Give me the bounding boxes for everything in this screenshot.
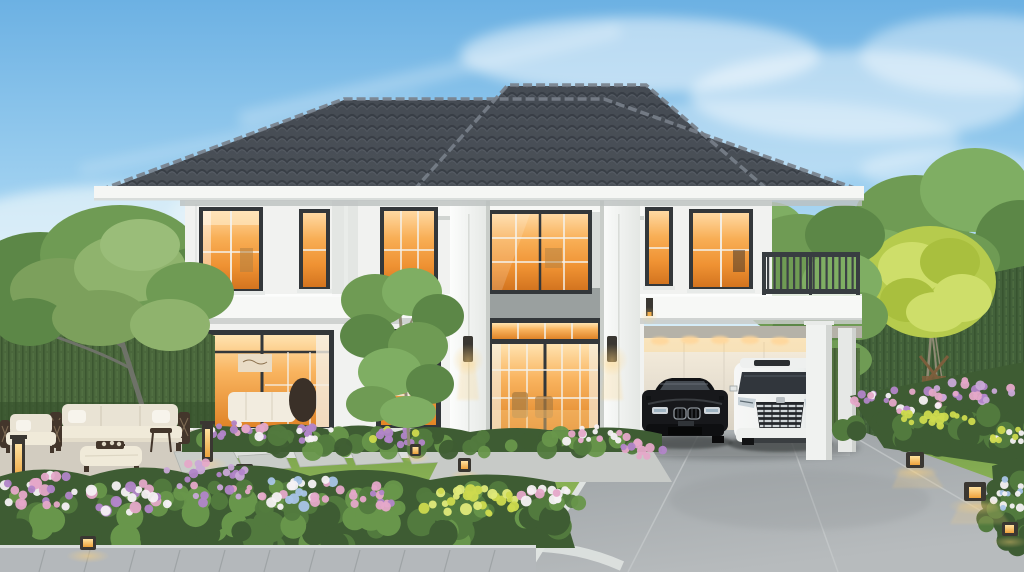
plant-dot (645, 443, 655, 453)
plant-dot (230, 426, 238, 434)
plant-dot (443, 508, 451, 516)
entry-door (486, 318, 604, 438)
plant-dot (195, 460, 203, 468)
plant-dot (225, 485, 235, 495)
plant-dot (960, 380, 969, 389)
plant-dot (521, 496, 532, 507)
plant-dot (447, 497, 456, 506)
plant-dot (397, 441, 404, 448)
plant-dot (462, 440, 477, 455)
plant-dot (886, 393, 892, 399)
plant-dot (111, 496, 122, 507)
plant-dot (285, 496, 293, 504)
plant-dot (163, 500, 171, 508)
plant-dot (858, 390, 866, 398)
plant-dot (321, 476, 329, 484)
plant-dot (658, 446, 667, 455)
plant-dot (594, 424, 599, 429)
plant-dot (295, 488, 303, 496)
plant-dot (177, 483, 183, 489)
plant-dot (231, 521, 251, 541)
plant-dot (948, 378, 957, 387)
plant-dot (568, 430, 575, 437)
plant-dot (144, 505, 153, 514)
plant-dot (211, 493, 229, 511)
plant-dot (5, 498, 13, 506)
plant-dot (909, 389, 915, 395)
house-exterior-render (0, 0, 1024, 572)
plant-dot (308, 480, 317, 489)
plant-dot (6, 518, 33, 545)
plant-dot (284, 504, 301, 521)
plant-dot (54, 501, 60, 507)
plant-dot (267, 425, 288, 446)
plant-dot (562, 437, 571, 446)
plant-dot (1016, 504, 1024, 512)
plant-dot (369, 435, 377, 443)
plant-dot (919, 396, 928, 405)
plant-dot (620, 444, 626, 450)
plant-dot (1019, 430, 1024, 436)
plant-dot (51, 471, 61, 481)
plant-dot (190, 482, 198, 490)
plant-dot (379, 490, 384, 495)
plant-dot (86, 485, 97, 496)
plant-dot (571, 496, 586, 511)
plant-dot (322, 495, 329, 502)
plant-dot (241, 424, 250, 433)
plant-dot (1006, 429, 1012, 435)
plant-dot (112, 481, 121, 490)
plant-dot (623, 433, 631, 441)
plant-dot (217, 484, 223, 490)
plant-dot (938, 413, 945, 420)
plant-dot (901, 416, 907, 422)
plant-dot (586, 437, 591, 442)
plant-dot (429, 501, 437, 509)
plant-dot (19, 491, 28, 500)
plant-dot (42, 501, 51, 510)
plant-dot (310, 492, 319, 501)
plant-dot (1002, 491, 1007, 496)
plant-dot (384, 428, 394, 438)
plant-dot (996, 437, 1002, 443)
plant-dot (239, 469, 246, 476)
portico-pilaster-right (600, 198, 640, 450)
plant-dot (953, 391, 959, 397)
window-upper-left-narrow (297, 209, 332, 293)
plant-dot (890, 387, 898, 395)
plant-dot (328, 427, 333, 432)
plant-dot (1015, 491, 1021, 497)
plant-dot (429, 520, 458, 549)
plant-dot (957, 421, 980, 444)
plant-dot (894, 423, 912, 441)
plant-dot (505, 439, 518, 452)
plant-dot (935, 393, 943, 401)
plant-dot (371, 485, 377, 491)
plant-dot (889, 399, 897, 407)
plant-dot (509, 501, 519, 511)
plant-dot (520, 433, 537, 450)
plant-dot (219, 430, 226, 437)
plant-dot (15, 498, 27, 510)
plant-dot (975, 381, 985, 391)
plant-dot (439, 440, 459, 460)
plant-dot (1002, 476, 1009, 483)
plant-dot (71, 489, 77, 495)
plant-dot (296, 428, 302, 434)
plant-dot (268, 477, 276, 485)
plant-dot (216, 472, 221, 477)
plant-dot (287, 482, 296, 491)
plant-dot (336, 485, 345, 494)
plant-dot (247, 485, 253, 491)
plant-dot (298, 501, 309, 512)
plant-dot (487, 489, 497, 499)
plant-dot (125, 481, 136, 492)
plant-dot (231, 420, 237, 426)
plant-dot (973, 391, 982, 400)
plant-dot (223, 469, 231, 477)
plant-dot (258, 492, 266, 500)
plant-dot (962, 415, 968, 421)
plant-dot (184, 460, 192, 468)
plant-dot (101, 506, 111, 516)
plant-dot (473, 501, 482, 510)
roof-fascia (94, 186, 864, 200)
plant-dot (926, 432, 951, 457)
plant-dot (299, 437, 306, 444)
plant-dot (305, 425, 311, 431)
plant-dot (28, 486, 36, 494)
plant-dot (919, 416, 927, 424)
plant-dot (867, 392, 874, 399)
plant-dot (141, 490, 150, 499)
plant-dot (189, 469, 198, 478)
plant-dot (992, 388, 998, 394)
terrace-railing (762, 252, 860, 295)
plant-dot (983, 397, 990, 404)
plant-dot (412, 429, 420, 437)
plant-dot (216, 423, 222, 429)
plant-dot (527, 485, 537, 495)
plant-dot (62, 502, 70, 510)
plant-dot (432, 429, 444, 441)
plant-dot (351, 500, 359, 508)
plant-dot (460, 503, 472, 515)
window-upper-center (488, 210, 592, 294)
plant-dot (1008, 389, 1015, 396)
plant-dot (486, 511, 492, 517)
plant-dot (934, 385, 941, 392)
plant-dot (201, 458, 210, 467)
plant-dot (456, 485, 465, 494)
plant-dot (304, 431, 310, 437)
plant-dot (62, 472, 71, 481)
plant-dot (47, 485, 55, 493)
plant-dot (506, 492, 513, 499)
plant-dot (593, 429, 598, 434)
plant-dot (236, 421, 242, 427)
plant-dot (478, 446, 491, 459)
plant-dot (578, 429, 586, 437)
plant-dot (41, 473, 49, 481)
plant-dot (4, 480, 12, 488)
window-upper-right-narrow (643, 207, 675, 290)
plant-dot (578, 438, 584, 444)
plant-dot (254, 432, 263, 441)
plant-dot (997, 426, 1005, 434)
plant-dot (616, 430, 622, 436)
plant-dot (277, 504, 283, 510)
plant-dot (360, 496, 367, 503)
plant-dot (130, 502, 142, 514)
plant-dot (968, 418, 975, 425)
plant-dot (553, 489, 561, 497)
plant-dot (884, 398, 889, 403)
plant-dot (627, 443, 635, 451)
plant-dot (542, 431, 558, 447)
plant-dot (193, 493, 199, 499)
plant-dot (1018, 438, 1024, 444)
plant-dot (596, 435, 603, 442)
plant-dot (615, 437, 621, 443)
plant-dot (850, 396, 859, 405)
plant-dot (990, 434, 996, 440)
portico (438, 196, 644, 456)
window-upper-right-wide (687, 209, 755, 293)
plant-dot (200, 491, 209, 500)
minivan-grille (756, 397, 804, 432)
plant-dot (164, 467, 170, 473)
plant-dot (229, 472, 236, 479)
plant-dot (376, 501, 385, 510)
plant-dot (272, 492, 282, 502)
plant-dot (236, 494, 242, 500)
plant-dot (930, 416, 937, 423)
plant-dot (1010, 503, 1015, 508)
plant-dot (370, 491, 376, 497)
plant-dot (10, 486, 19, 495)
plant-dot (608, 430, 614, 436)
plant-dot (476, 430, 490, 444)
plant-dot (465, 484, 476, 495)
plant-dot (976, 403, 1000, 427)
plant-dot (419, 503, 430, 514)
plant-dot (901, 410, 907, 416)
plant-dot (351, 489, 357, 495)
plant-dot (909, 420, 915, 426)
plant-dot (1012, 434, 1018, 440)
plant-dot (950, 411, 957, 418)
plant-dot (334, 438, 352, 456)
plant-dot (184, 476, 190, 482)
plant-dot (935, 402, 942, 409)
plant-dot (438, 488, 444, 494)
plant-dot (847, 421, 867, 441)
